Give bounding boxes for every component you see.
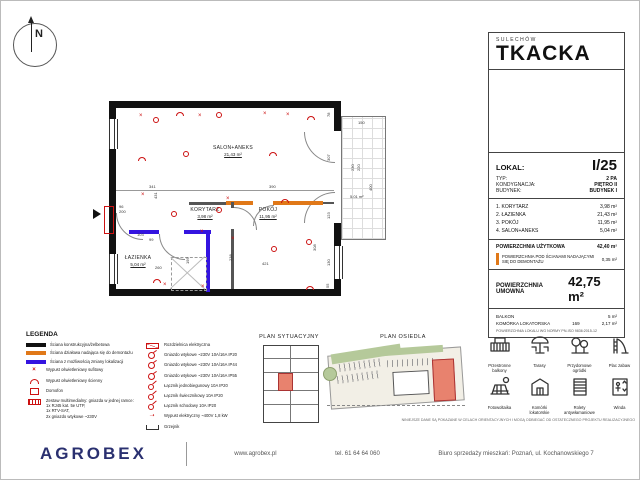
legend-item: Domofon xyxy=(26,388,134,395)
dimension-label: 78 xyxy=(326,113,331,117)
room-name-cell: 4. SALON+ANEKS xyxy=(496,227,538,235)
amenity-cell: Rolety antywłamaniowe xyxy=(560,375,599,417)
dimension-label: 130 xyxy=(326,259,331,266)
electrical-symbol-o xyxy=(153,117,159,123)
dimension-label: 308 xyxy=(312,244,317,251)
wall-left-1 xyxy=(109,101,116,119)
usable-area-value: 42,40 m² xyxy=(597,244,617,250)
balcony-label: BALKON xyxy=(496,313,514,320)
lg-arc-icon xyxy=(26,378,42,385)
lokal-value: I/25 xyxy=(592,157,617,174)
wall-right-1 xyxy=(334,101,341,131)
room-row: 3. POKÓJ11,95 m² xyxy=(496,219,617,227)
legend-item: Ściana działowa nadająca się do demontaż… xyxy=(26,350,134,355)
amenity-cell: Przestronne balkony xyxy=(480,333,519,375)
window-left-bottom xyxy=(109,254,118,284)
electrical-panel xyxy=(104,206,114,234)
demountable-area-label: POWIERZCHNIA POD ŚCIANAMI NADAJĄCYMI SIĘ… xyxy=(502,254,599,265)
amenity-cell: Przydomowe ogródki xyxy=(560,333,599,375)
wall-salon-korytarz xyxy=(189,202,226,205)
electrical-symbol-x: × xyxy=(263,111,267,117)
lg-rozdz-icon xyxy=(144,342,160,349)
dimension-label: 220 xyxy=(356,164,361,171)
legend-item: Ściana konstrukcyjna/żelbetowa xyxy=(26,342,134,347)
legend-item: Łącznik schodowy 10A IP20 xyxy=(144,403,256,410)
room-area-cell: 11,95 m² xyxy=(598,219,617,227)
dimension-label: 431 xyxy=(153,192,158,199)
room-name-cell: 1. KORYTARZ xyxy=(496,203,528,211)
legend-item: Zestaw multimedialny: gniazda w jednej r… xyxy=(26,398,134,419)
legend-item: Wypust oświetleniowy sufitowy xyxy=(26,367,134,374)
plan-room-name: SALON+ANEKS xyxy=(213,145,253,151)
amenity-label: Komórki lokatorskie xyxy=(529,405,549,415)
legend-item-label: Domofon xyxy=(46,388,63,393)
demountable-area-value: 0,35 m² xyxy=(602,257,617,262)
lg-multi-icon xyxy=(26,398,42,405)
room-area-cell: 21,43 m² xyxy=(597,211,617,219)
storage-unit-value: 2,17 m² xyxy=(602,320,617,327)
balcony-icon xyxy=(488,333,512,362)
amenity-label: Przydomowe ogródki xyxy=(567,363,591,373)
balcony-area-label: 5,01 m² xyxy=(350,194,364,199)
window-left-top xyxy=(109,119,118,149)
amenity-cell: Komórki lokatorskie xyxy=(520,375,559,417)
entrance-arrow-icon xyxy=(93,209,101,219)
site-plan-title: PLAN SYTUACYJNY xyxy=(259,334,319,340)
wall-stub-right xyxy=(323,202,334,204)
electrical-symbol-arc xyxy=(281,199,289,203)
electrical-symbol-arc xyxy=(306,286,314,290)
electrical-symbol-o xyxy=(183,151,189,157)
electrical-symbol-o xyxy=(171,211,177,217)
amenity-label: Winda xyxy=(614,405,626,410)
electrical-symbol-arc xyxy=(269,152,277,156)
electrical-symbol-x: × xyxy=(286,112,290,118)
dimension-label: 55 xyxy=(325,284,330,288)
estate-building-highlighted xyxy=(432,358,456,401)
lg-grz-icon xyxy=(144,424,160,431)
plan-room-name: ŁAZIENKA xyxy=(125,255,152,261)
room-name-cell: 2. ŁAZIENKA xyxy=(496,211,526,219)
dimension-label: 307 xyxy=(326,154,331,161)
electrical-symbol-arc xyxy=(138,157,146,161)
electrical-symbol-arc xyxy=(176,112,184,116)
wall-left-2 xyxy=(109,149,116,254)
card-unit-info: LOKAL: I/25 TYP: 2 PA KONDYGNACJA: PIĘTR… xyxy=(489,153,624,199)
plan-room-area: 5,04 m² xyxy=(130,262,145,267)
legend-item-label: Ściana działowa nadająca się do demontaż… xyxy=(50,350,133,355)
footer-office-address: Biuro sprzedaży mieszkań: Poznań, ul. Ko… xyxy=(438,451,593,457)
wall-left-3 xyxy=(109,284,116,296)
dimension-chain-line xyxy=(116,190,334,191)
lg-lacz-icon xyxy=(144,403,160,410)
legend-item-label: Gniazdo wtykowe ~230V 10A/16A IP20 xyxy=(164,352,237,357)
estate-plan-title: PLAN OSIEDLA xyxy=(380,334,426,340)
legend-item-label: Rozdzielnica elektryczna xyxy=(164,342,210,347)
dimension-label: 341 xyxy=(149,184,156,189)
amenity-label: Tarasy xyxy=(533,363,545,368)
plan-room-name: POKÓJ xyxy=(259,207,277,213)
plan-room-area: 21,43 m² xyxy=(224,152,242,157)
sw-orange-icon xyxy=(26,351,46,355)
electrical-symbol-x: × xyxy=(141,192,145,198)
electrical-symbol-o xyxy=(216,112,222,118)
unit-card: SULECHÓW TKACKA LOKAL: I/25 TYP: 2 PA KO… xyxy=(488,32,625,338)
electrical-symbol-o xyxy=(306,239,312,245)
electrical-symbol-o xyxy=(216,207,222,213)
budynek-label: BUDYNEK: xyxy=(496,188,522,194)
room-list: 1. KORYTARZ3,98 m²2. ŁAZIENKA21,43 m²3. … xyxy=(489,199,624,240)
lokal-label: LOKAL: xyxy=(496,163,524,172)
contract-area-row: POWIERZCHNIA UMOWNA 42,75 m² xyxy=(489,270,624,309)
legend-item: Rozdzielnica elektryczna xyxy=(144,342,256,349)
electrical-symbol-x: × xyxy=(163,282,167,288)
legend-item: Gniazdo wtykowe ~230V 10A/16A IP44 xyxy=(144,362,256,369)
amenity-label: Fotowoltaika xyxy=(488,405,512,410)
amenity-cell: Plac zabaw xyxy=(600,333,639,375)
electrical-symbol-x: × xyxy=(139,113,143,119)
site-plan-highlighted-unit xyxy=(278,373,293,391)
legend: LEGENDA Ściana konstrukcyjna/żelbetowaŚc… xyxy=(26,331,261,434)
playground-icon xyxy=(608,333,632,362)
legend-item-label: Ściana konstrukcyjna/żelbetowa xyxy=(50,342,110,347)
amenity-label: Plac zabaw xyxy=(609,363,630,368)
lg-wyp-icon xyxy=(144,413,160,420)
electrical-symbol-x: × xyxy=(198,113,202,119)
flat-card-page: N xyxy=(0,0,640,480)
sw-blue-icon xyxy=(26,360,46,364)
amenities-grid: Przestronne balkonyTarasyPrzydomowe ogró… xyxy=(480,333,639,417)
legend-item: Grzejnik xyxy=(144,424,256,431)
window-right xyxy=(334,246,343,279)
contract-area-value: 42,75 m² xyxy=(568,274,617,304)
blinds-icon xyxy=(568,375,592,404)
dimension-label: 103 xyxy=(137,232,144,237)
footer-phone: tel. 61 64 64 060 xyxy=(335,451,380,457)
site-plan-drawing xyxy=(263,345,319,423)
wall-right-3 xyxy=(334,279,341,296)
room-area-cell: 3,98 m² xyxy=(600,203,617,211)
legend-item-label: Gniazdo wtykowe ~230V 10A/16A IP55 xyxy=(164,373,237,378)
legend-item: Łącznik jednobiegunowy 10A IP20 xyxy=(144,383,256,390)
amenity-label: Rolety antywłamaniowe xyxy=(564,405,595,415)
dimension-label: 195 xyxy=(185,257,190,264)
legend-item: Łącznik świecznikowy 10A IP20 xyxy=(144,393,256,400)
room-area-cell: 5,04 m² xyxy=(600,227,617,235)
legend-item-label: Łącznik schodowy 10A IP20 xyxy=(164,403,216,408)
amenity-cell: Tarasy xyxy=(520,333,559,375)
estate-building-1 xyxy=(392,370,429,396)
legend-item-label: Zestaw multimedialny: gniazda w jednej r… xyxy=(46,398,134,419)
dimension-label: 200 xyxy=(119,209,126,214)
room-row: 2. ŁAZIENKA21,43 m² xyxy=(496,211,617,219)
legend-item: Gniazdo wtykowe ~230V 10A/16A IP55 xyxy=(144,373,256,380)
electrical-symbol-x: × xyxy=(200,229,204,235)
terrace-icon xyxy=(528,333,552,362)
plan-room-area: 3,98 m² xyxy=(197,214,212,219)
plan-room-area: 11,95 m² xyxy=(259,214,276,219)
storage-unit-label: KOMÓRKA LOKATORSKA xyxy=(496,320,550,327)
legend-item: Wypust elektryczny ~400V 1,8 kW xyxy=(144,413,256,420)
storage-icon xyxy=(528,375,552,404)
amenities-disclaimer: NINIEJSZE DANE SĄ POKAZANE W CELACH ORIE… xyxy=(402,418,635,422)
wall-bottom xyxy=(109,289,341,296)
room-row: 1. KORYTARZ3,98 m² xyxy=(496,203,617,211)
legend-item: Ściana z możliwością zmiany lokalizacji xyxy=(26,359,134,364)
lg-lacz-icon xyxy=(144,393,160,400)
balcony-value: 5 m² xyxy=(608,313,617,320)
dimension-label: 123 xyxy=(326,212,331,219)
lg-x-icon xyxy=(26,367,42,374)
amenity-cell: Fotowoltaika xyxy=(480,375,519,417)
legend-item-label: Wypust oświetleniowy ścienny xyxy=(46,378,102,383)
sw-black-icon xyxy=(26,343,46,347)
legend-column-left: Ściana konstrukcyjna/żelbetowaŚciana dzi… xyxy=(26,342,134,434)
electrical-symbol-x: × xyxy=(201,284,205,290)
dimension-label: 421 xyxy=(262,261,269,266)
estate-plan-drawing xyxy=(323,345,469,415)
demountable-area-swatch xyxy=(496,253,499,265)
dimension-label: 230 xyxy=(350,164,355,171)
legend-item-label: Grzejnik xyxy=(164,424,179,429)
legend-item-label: Łącznik świecznikowy 10A IP20 xyxy=(164,393,223,398)
room-name-cell: 3. POKÓJ xyxy=(496,219,519,227)
solar-icon xyxy=(488,375,512,404)
dimension-label: 238 xyxy=(228,254,233,261)
electrical-symbol-o xyxy=(271,246,277,252)
electrical-symbol-x: × xyxy=(226,196,230,202)
storage-unit-number: 169 xyxy=(572,320,580,327)
wall-right-2 xyxy=(334,223,341,246)
dimension-label: 390 xyxy=(269,184,276,189)
lg-dom-icon xyxy=(26,388,42,395)
footer-website-link[interactable]: www.agrobex.pl xyxy=(234,451,276,457)
usable-area-label: POWIERZCHNIA UŻYTKOWA xyxy=(496,244,565,250)
card-notes-blank xyxy=(489,70,624,153)
usable-area-row: POWIERZCHNIA UŻYTKOWA 42,40 m² POWIERZCH… xyxy=(489,240,624,270)
legend-item-label: Wypust oświetleniowy sufitowy xyxy=(46,367,103,372)
lg-gn-icon xyxy=(144,352,160,359)
budynek-value: BUDYNEK I xyxy=(589,188,617,194)
dimension-label: 99 xyxy=(149,237,153,242)
legend-item: Wypust oświetleniowy ścienny xyxy=(26,378,134,385)
legend-title: LEGENDA xyxy=(26,331,261,338)
agrobex-logo: AGROBEX xyxy=(40,444,147,463)
legend-column-right: Rozdzielnica elektrycznaGniazdo wtykowe … xyxy=(144,342,256,434)
dimension-label: 150 xyxy=(358,120,365,125)
lg-gn-icon xyxy=(144,362,160,369)
card-header: SULECHÓW TKACKA xyxy=(489,33,624,70)
balcony xyxy=(341,116,386,240)
lg-gn-icon xyxy=(144,373,160,380)
legend-item-label: Gniazdo wtykowe ~230V 10A/16A IP44 xyxy=(164,362,237,367)
contract-area-label: POWIERZCHNIA UMOWNA xyxy=(496,283,568,295)
electrical-symbol-x: × xyxy=(231,236,235,242)
lg-lacz-icon xyxy=(144,383,160,390)
amenity-label: Przestronne balkony xyxy=(488,363,511,373)
electrical-symbol-arc xyxy=(153,279,161,283)
wall-top xyxy=(109,101,341,108)
dimension-label: 260 xyxy=(155,265,162,270)
legend-item-label: Ściana z możliwością zmiany lokalizacji xyxy=(50,359,123,364)
legend-item: Gniazdo wtykowe ~230V 10A/16A IP20 xyxy=(144,352,256,359)
legend-item-label: Łącznik jednobiegunowy 10A IP20 xyxy=(164,383,228,388)
garden-icon xyxy=(568,333,592,362)
legend-item-label: Wypust elektryczny ~400V 1,8 kW xyxy=(164,413,228,418)
dimension-label: 400 xyxy=(368,184,373,191)
project-title: TKACKA xyxy=(496,43,617,65)
room-row: 4. SALON+ANEKS5,04 m² xyxy=(496,227,617,235)
elevator-icon xyxy=(608,375,632,404)
footer: AGROBEX www.agrobex.pl tel. 61 64 64 060… xyxy=(1,437,640,471)
electrical-symbol-arc xyxy=(307,116,315,120)
pokoj-door-arc xyxy=(234,207,257,230)
amenity-cell: Winda xyxy=(600,375,639,417)
